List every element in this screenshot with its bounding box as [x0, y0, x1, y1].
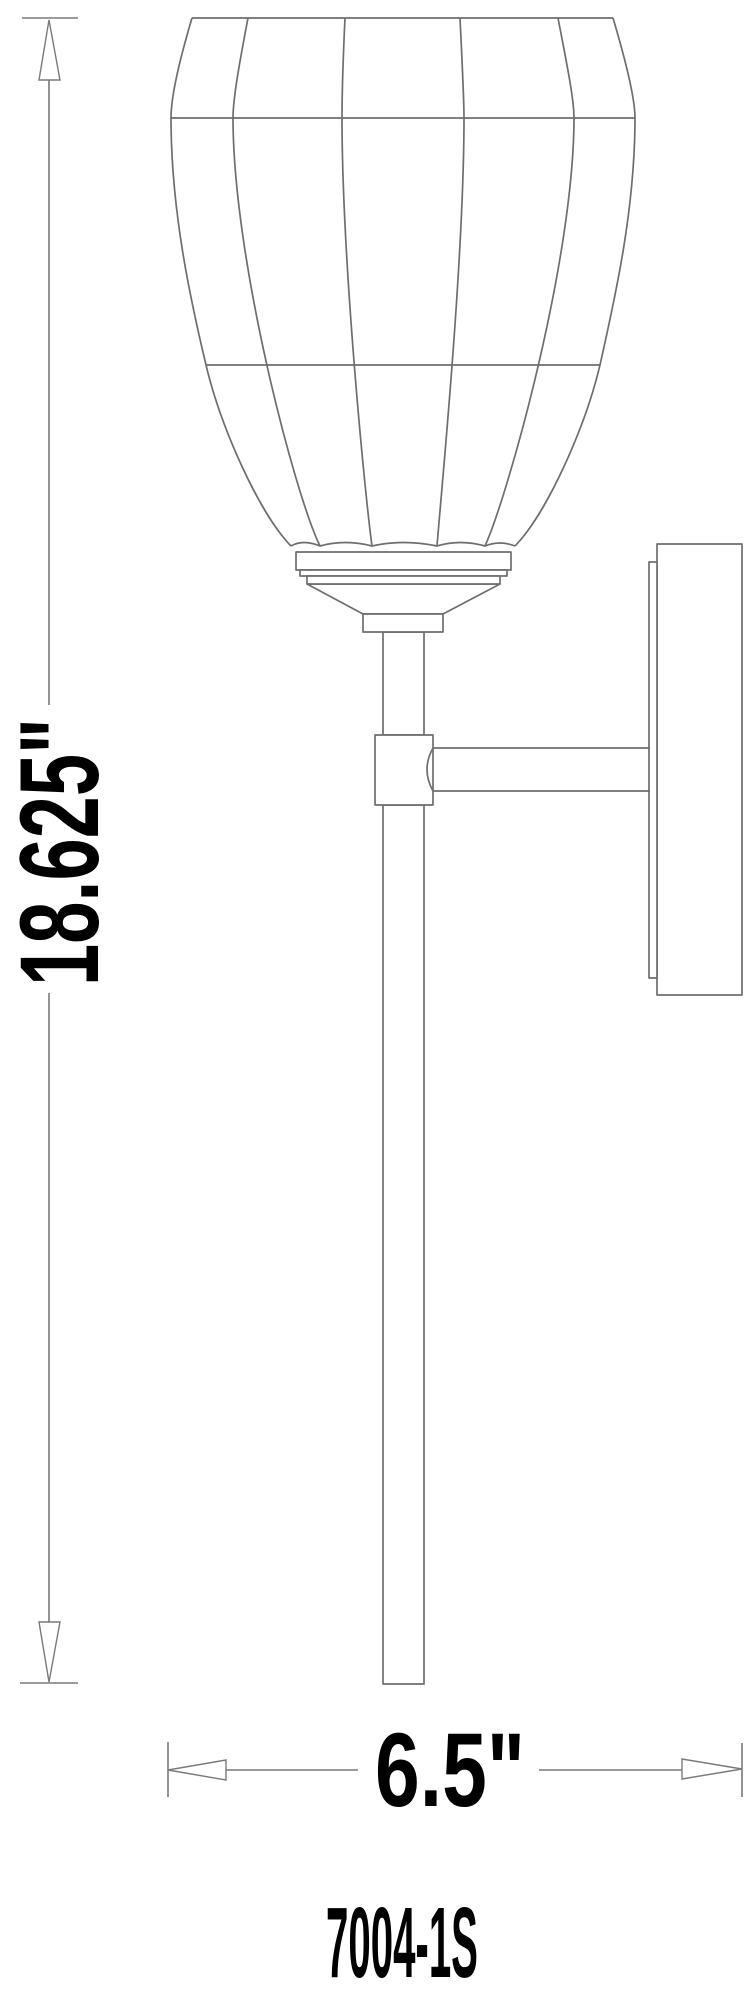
wall-plate-back [657, 544, 742, 995]
wall-plate [649, 544, 742, 995]
shade-left-silhouette [171, 18, 291, 546]
shade-facet-line [342, 18, 372, 546]
shade-facet-line [485, 18, 574, 546]
arm-tube [433, 748, 650, 791]
arm-junction-block [375, 735, 433, 805]
arrow-down-icon [39, 1622, 60, 1682]
fitter-lip-band [307, 576, 500, 584]
socket-collar [363, 614, 443, 632]
shade-bottom-edge [291, 543, 515, 547]
fitter-ring-band [296, 552, 511, 570]
model-number-label: 7004-1S [326, 1887, 478, 1999]
shade-facet-line [437, 18, 464, 546]
shade-facet-line [233, 18, 320, 546]
shade-fitter [296, 552, 511, 632]
arrow-right-icon [682, 1759, 742, 1779]
shade-right-silhouette [515, 18, 635, 546]
wall-plate-front-edge [649, 562, 657, 978]
lower-stem [383, 805, 424, 1684]
fitter-cone [307, 584, 500, 614]
drawing-canvas: 18.625" 6.5" 7004-1S [0, 0, 752, 2000]
sconce-dimension-drawing: 18.625" 6.5" 7004-1S [0, 0, 752, 2000]
fitter-step-band [300, 570, 507, 576]
width-dimension: 6.5" [168, 1712, 742, 1829]
arrow-up-icon [39, 20, 60, 80]
height-dimension: 18.625" [0, 18, 122, 1683]
height-dimension-label: 18.625" [0, 718, 122, 986]
glass-shade [171, 18, 635, 546]
stem-column [375, 632, 433, 1684]
width-dimension-label: 6.5" [375, 1712, 525, 1829]
arrow-left-icon [168, 1760, 226, 1780]
upper-stem [383, 632, 424, 735]
